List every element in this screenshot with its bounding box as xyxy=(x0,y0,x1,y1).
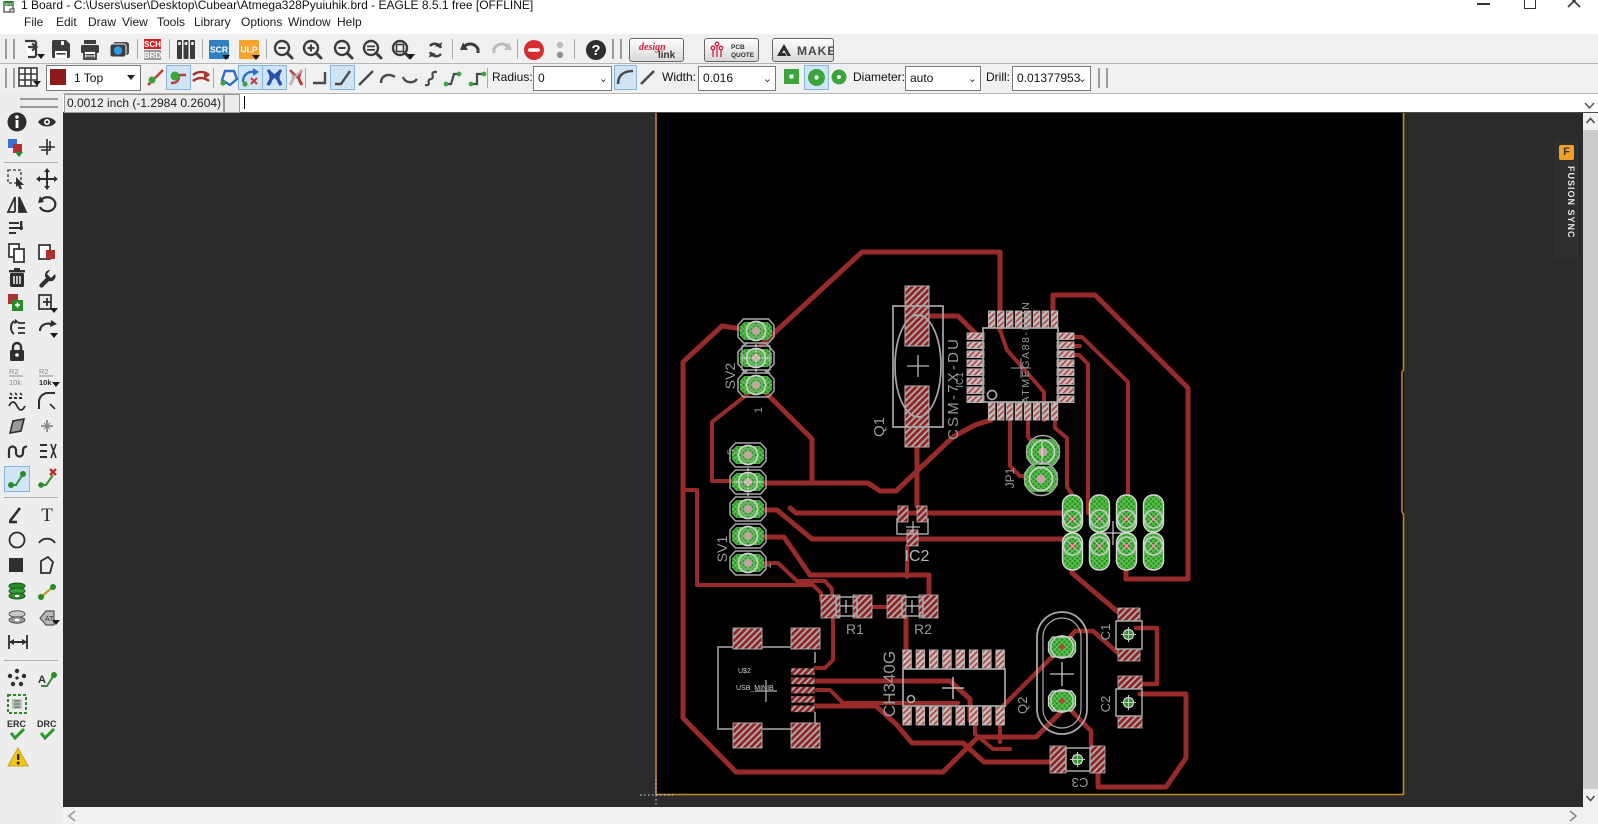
svg-text:C1: C1 xyxy=(1098,624,1113,641)
svg-text:U$2: U$2 xyxy=(738,668,751,675)
svg-text:1: 1 xyxy=(753,407,765,413)
svg-text:IC1: IC1 xyxy=(955,372,966,388)
svg-text:ATMEGA88-MMN: ATMEGA88-MMN xyxy=(1020,300,1032,403)
svg-text:R2: R2 xyxy=(39,367,49,376)
svg-text:BRD: BRD xyxy=(144,51,162,60)
svg-text:R2: R2 xyxy=(914,621,932,637)
svg-text:5: 5 xyxy=(726,449,738,455)
svg-text:BRD: BRD xyxy=(4,2,13,7)
svg-text:MAKE: MAKE xyxy=(797,44,833,58)
svg-text:SCR: SCR xyxy=(210,45,228,55)
svg-text:1: 1 xyxy=(762,563,774,569)
svg-text:SV1: SV1 xyxy=(714,536,730,563)
svg-text:ULP: ULP xyxy=(241,45,258,55)
svg-text:CH340G: CH340G xyxy=(880,651,899,717)
svg-text:Q1: Q1 xyxy=(871,417,888,437)
svg-text:Q2: Q2 xyxy=(1015,697,1030,714)
svg-text:R1: R1 xyxy=(846,621,864,637)
svg-text:SV2: SV2 xyxy=(722,363,738,390)
svg-text:C3: C3 xyxy=(1072,775,1089,790)
svg-text:C2: C2 xyxy=(1098,696,1113,713)
svg-text:link: link xyxy=(658,50,676,61)
svg-text:?: ? xyxy=(591,42,600,59)
svg-text:AT: AT xyxy=(45,616,54,623)
svg-text:10k: 10k xyxy=(39,378,52,387)
svg-text:T: T xyxy=(41,505,53,525)
svg-text:IC2: IC2 xyxy=(905,548,930,565)
svg-text:ERC: ERC xyxy=(7,719,27,729)
svg-text:DRC: DRC xyxy=(37,719,57,729)
svg-text:R2: R2 xyxy=(9,367,19,376)
svg-text:JP1: JP1 xyxy=(1003,467,1017,488)
svg-text:A: A xyxy=(38,674,46,686)
svg-text:SCH: SCH xyxy=(144,40,161,49)
svg-text:PCB: PCB xyxy=(731,44,745,51)
svg-text:USB_MINIB: USB_MINIB xyxy=(736,685,774,692)
svg-text:QUOTE: QUOTE xyxy=(731,52,755,59)
svg-text:10k: 10k xyxy=(9,378,21,387)
